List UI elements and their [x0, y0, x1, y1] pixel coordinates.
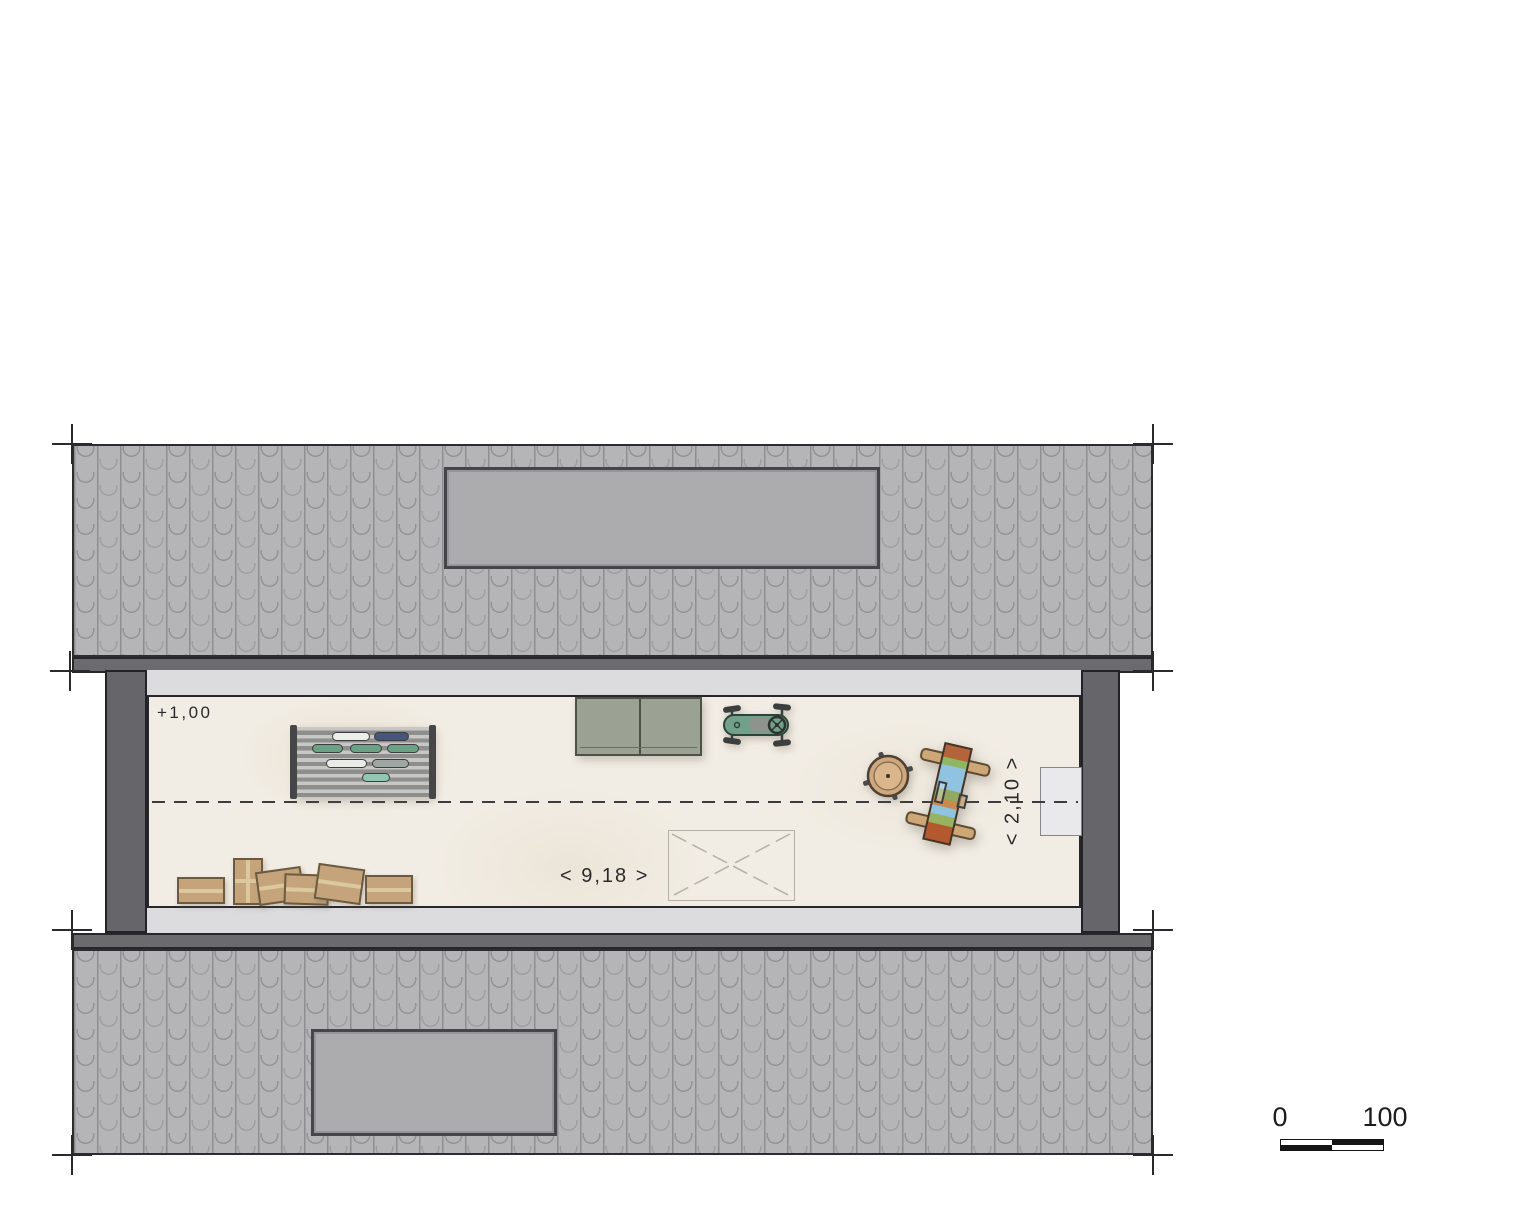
rack-post: [429, 725, 436, 799]
attic-floor-plan: +1,00 < 9,18 > < 2,10 > 0 100: [0, 0, 1536, 1213]
bench-clamp: [956, 794, 968, 810]
gable-wall-right: [1081, 670, 1120, 933]
level-label: +1,00: [157, 703, 213, 723]
cardboard-box-icon: [177, 877, 225, 904]
width-dimension-label: < 9,18 >: [560, 865, 649, 888]
roof-slope-top: [72, 444, 1153, 657]
skylight-icon: [444, 467, 880, 569]
rack-item: [374, 732, 409, 741]
scale-bar: 0 100: [1255, 1102, 1415, 1158]
scale-bar-hundred-label: 100: [1357, 1102, 1413, 1132]
depth-dimension-label: < 2,10 >: [1002, 756, 1025, 846]
storage-cabinet-icon: [575, 697, 702, 756]
storage-rack-icon: [293, 727, 433, 797]
rack-item: [332, 732, 370, 741]
cabinet-edge: [580, 747, 697, 749]
cardboard-box-icon: [365, 875, 413, 904]
scale-bar-graphic: [1280, 1139, 1384, 1151]
rack-post: [290, 725, 297, 799]
cardboard-box-icon: [314, 863, 366, 905]
round-stool-icon: [862, 751, 914, 801]
rack-item: [350, 744, 382, 753]
rack-item: [362, 773, 390, 782]
rack-item: [312, 744, 343, 753]
pedal-car-icon: [716, 700, 802, 750]
crossed-diagonals: [669, 831, 793, 899]
rack-item: [372, 759, 409, 768]
skylight-icon: [311, 1029, 557, 1136]
scale-bar-segment: [1332, 1140, 1383, 1150]
roof-eave-bottom: [72, 933, 1153, 949]
floor-opening-icon: [668, 830, 795, 901]
scale-bar-zero-label: 0: [1265, 1102, 1295, 1132]
rack-item: [387, 744, 419, 753]
gable-wall-left: [105, 670, 147, 933]
rack-item: [326, 759, 367, 768]
roof-slope-bottom: [72, 949, 1153, 1155]
scale-bar-segment: [1281, 1140, 1332, 1150]
